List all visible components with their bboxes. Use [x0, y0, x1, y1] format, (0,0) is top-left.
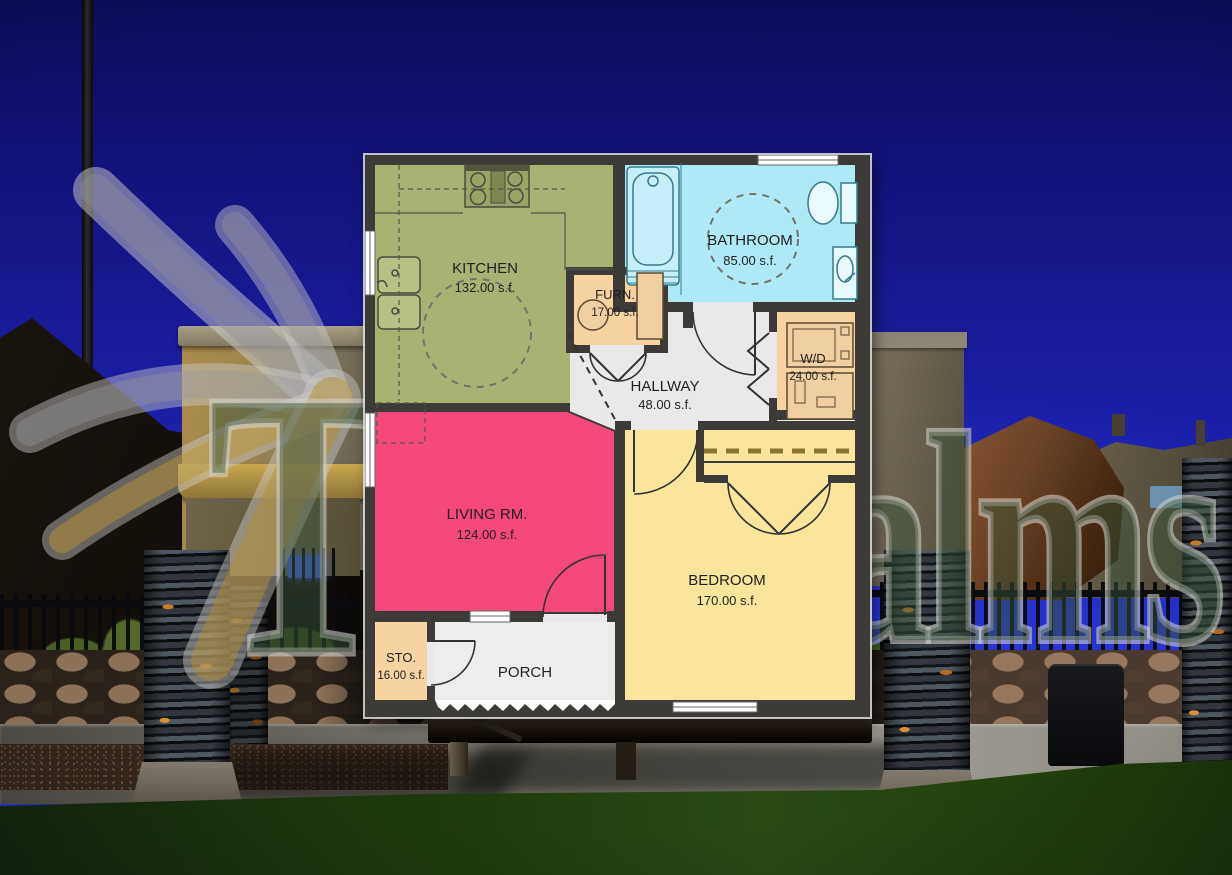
- toilet-icon: [808, 182, 857, 224]
- furnace-label: FURN.: [595, 287, 635, 302]
- kitchen-area: 132.00 s.f.: [455, 280, 516, 295]
- room-porch: [435, 622, 615, 702]
- kitchen-label: KITCHEN: [452, 260, 518, 277]
- sign-leg: [616, 742, 636, 780]
- living-label: LIVING RM.: [447, 506, 528, 523]
- floor-plan-sign: KITCHEN 132.00 s.f. BATHROOM 85.00 s.f. …: [365, 155, 870, 717]
- washer-dryer-area: 24.00 s.f.: [789, 371, 836, 383]
- bathroom-sink-icon: [833, 247, 857, 299]
- washer-dryer-label: W/D: [800, 351, 825, 366]
- bathroom-label: BATHROOM: [707, 232, 793, 249]
- storage-area: 16.00 s.f.: [377, 670, 424, 682]
- furnace-area: 17.00 s.f.: [591, 307, 638, 319]
- stove-icon: [465, 165, 529, 207]
- bedroom-area: 170.00 s.f.: [697, 593, 758, 608]
- room-bedroom: [625, 430, 855, 700]
- bedroom-label: BEDROOM: [688, 572, 766, 589]
- sign-leg: [450, 742, 468, 776]
- scene: The Palms: [0, 0, 1232, 875]
- water-heater-icon: [637, 273, 663, 339]
- hallway-label: HALLWAY: [631, 378, 700, 395]
- storage-label: STO.: [386, 650, 416, 665]
- living-area: 124.00 s.f.: [457, 527, 518, 542]
- bathroom-area: 85.00 s.f.: [723, 253, 776, 268]
- porch-label: PORCH: [498, 664, 552, 681]
- hallway-area: 48.00 s.f.: [638, 397, 691, 412]
